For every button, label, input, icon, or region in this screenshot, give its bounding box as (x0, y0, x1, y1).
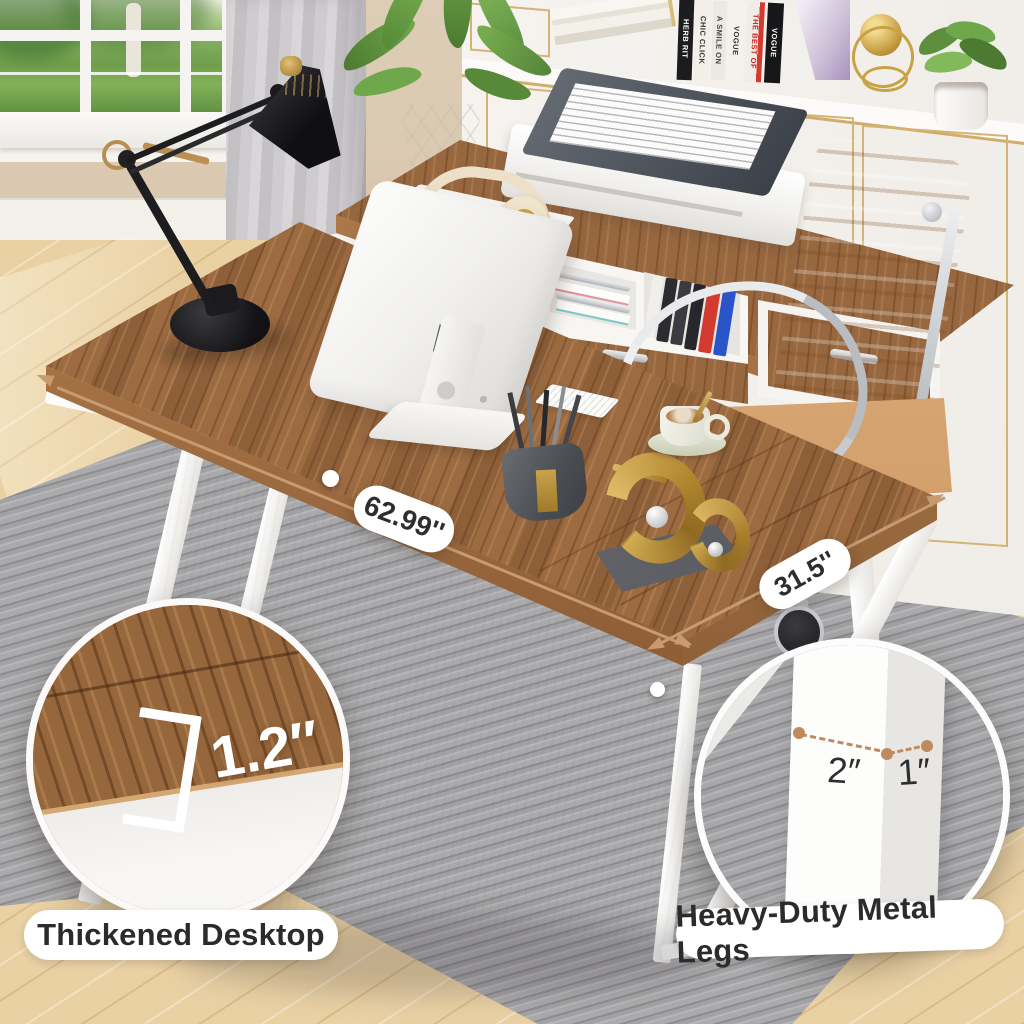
window-mullion-vertical (180, 0, 191, 116)
leg-depth-label: 1″ (883, 741, 945, 803)
sculpture-pearl-small (708, 542, 723, 557)
globe-ornament-base (862, 66, 908, 92)
callout-circle-thickness: 1.2″ (26, 598, 350, 922)
pen-cup-gold-plate (536, 469, 558, 512)
book-spine-label: A SMILE ON (711, 1, 728, 80)
monitor-port-dot (479, 395, 488, 403)
lamp-finial-cap (280, 56, 302, 76)
leg-depth-value: 1″ (896, 750, 932, 794)
anchor-dot (650, 682, 665, 697)
leg-width-value: 2″ (826, 749, 862, 793)
small-plant-pot (934, 82, 988, 130)
caption-left-text: Thickened Desktop (37, 917, 325, 953)
caption-pill-left: Thickened Desktop (24, 910, 338, 960)
caption-right-text: Heavy-Duty Metal Legs (675, 887, 1005, 970)
book-spine: HERB RIT (677, 0, 695, 80)
window-mullion-horizontal (0, 30, 222, 41)
product-photo-scene: HERB RIT CHIC CLICK A SMILE ON VOGUE THE… (0, 0, 1024, 1024)
stand-cable-hole (435, 379, 457, 401)
leg-measure-dot (793, 727, 805, 739)
book-spine: CHIC CLICK (694, 0, 712, 80)
book-spine: A SMILE ON (711, 1, 728, 80)
caption-pill-right: Heavy-Duty Metal Legs (675, 898, 1005, 959)
book-spine-label: CHIC CLICK (694, 0, 712, 80)
cup-handle (704, 414, 730, 440)
sculpture-pearl-large (646, 506, 668, 528)
chair-top-cap (922, 202, 942, 222)
anchor-dot (322, 470, 339, 487)
leg-width-label: 2″ (811, 739, 877, 803)
window-mullion-vertical (80, 0, 91, 116)
thickness-value: 1.2″ (206, 707, 324, 792)
book-spine-label: HERB RIT (677, 0, 695, 80)
